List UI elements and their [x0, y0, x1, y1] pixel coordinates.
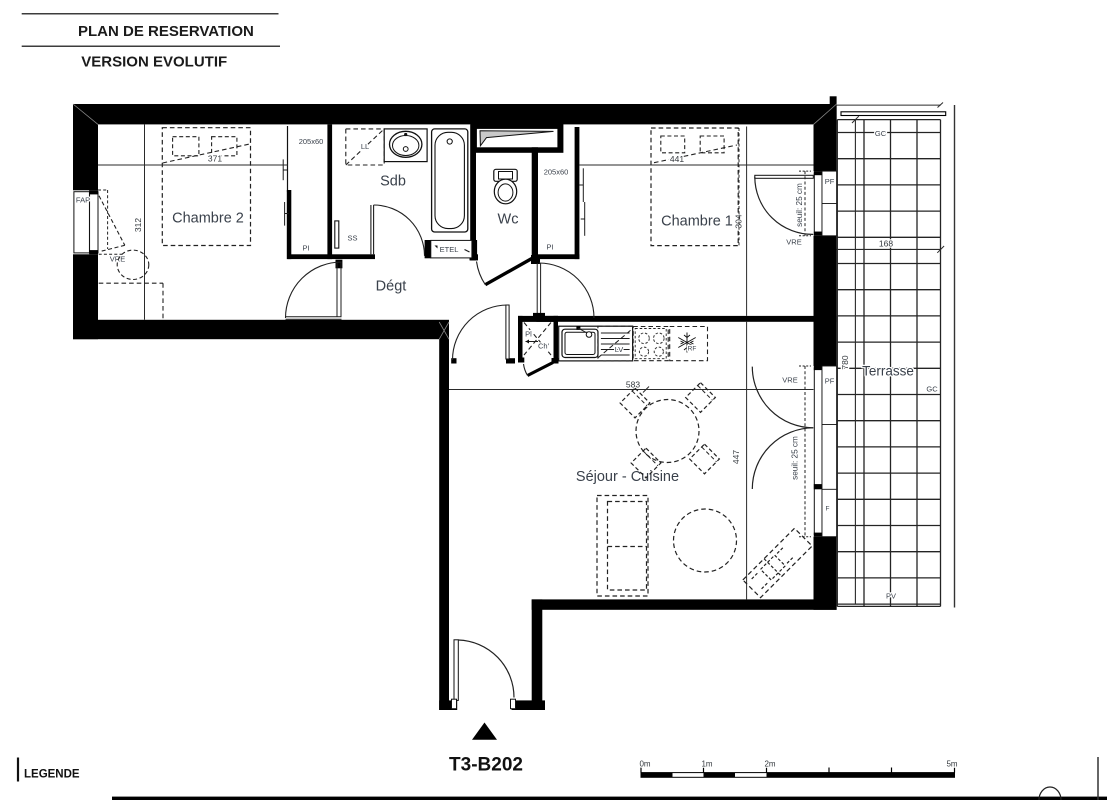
- svg-text:FAP: FAP: [76, 195, 90, 204]
- svg-text:seuil: 25 cm: seuil: 25 cm: [791, 436, 800, 480]
- svg-text:VRE: VRE: [786, 238, 801, 247]
- svg-text:Chambre 2: Chambre 2: [172, 211, 244, 227]
- svg-text:Chambre 1: Chambre 1: [661, 214, 733, 230]
- svg-text:VRE: VRE: [110, 255, 125, 264]
- svg-text:Pl: Pl: [525, 330, 532, 339]
- svg-text:205x60: 205x60: [544, 167, 569, 176]
- svg-text:GC: GC: [875, 129, 887, 138]
- svg-text:F: F: [826, 506, 830, 513]
- svg-text:PI: PI: [546, 242, 553, 251]
- svg-text:T3-B202: T3-B202: [449, 755, 523, 776]
- svg-text:ETEL: ETEL: [440, 245, 459, 254]
- svg-text:780: 780: [840, 355, 850, 369]
- svg-text:5m: 5m: [946, 760, 957, 769]
- svg-text:312: 312: [133, 218, 143, 232]
- svg-text:LL: LL: [361, 142, 369, 151]
- svg-text:168: 168: [879, 239, 893, 249]
- svg-text:447: 447: [731, 450, 741, 464]
- svg-text:583: 583: [626, 379, 640, 389]
- svg-text:205x60: 205x60: [299, 137, 324, 146]
- svg-text:0m: 0m: [639, 760, 650, 769]
- svg-text:PI: PI: [302, 244, 309, 253]
- svg-text:GC: GC: [926, 385, 938, 394]
- svg-text:2m: 2m: [764, 760, 775, 769]
- svg-text:VRE: VRE: [782, 375, 797, 384]
- svg-text:Terrasse: Terrasse: [862, 364, 914, 379]
- svg-text:Ch': Ch': [538, 342, 550, 351]
- svg-text:Dégt: Dégt: [376, 279, 407, 295]
- svg-text:SS: SS: [347, 234, 357, 243]
- svg-text:Wc: Wc: [498, 212, 519, 228]
- svg-text:1m: 1m: [701, 760, 712, 769]
- svg-text:PLAN DE RESERVATION: PLAN DE RESERVATION: [78, 23, 254, 40]
- svg-text:441: 441: [670, 154, 684, 164]
- svg-text:RF: RF: [688, 346, 697, 353]
- svg-text:PF: PF: [825, 177, 835, 186]
- svg-text:PF: PF: [825, 377, 835, 386]
- svg-text:LEGENDE: LEGENDE: [24, 769, 80, 781]
- svg-text:Sdb: Sdb: [380, 174, 406, 190]
- svg-text:LV: LV: [615, 345, 624, 354]
- svg-text:304: 304: [734, 214, 744, 228]
- svg-text:PV: PV: [886, 592, 896, 601]
- svg-text:Séjour - Cuisine: Séjour - Cuisine: [576, 469, 679, 485]
- svg-text:seuil: 25 cm: seuil: 25 cm: [795, 183, 804, 227]
- svg-text:371: 371: [208, 154, 222, 164]
- svg-text:VERSION EVOLUTIF: VERSION EVOLUTIF: [81, 54, 227, 71]
